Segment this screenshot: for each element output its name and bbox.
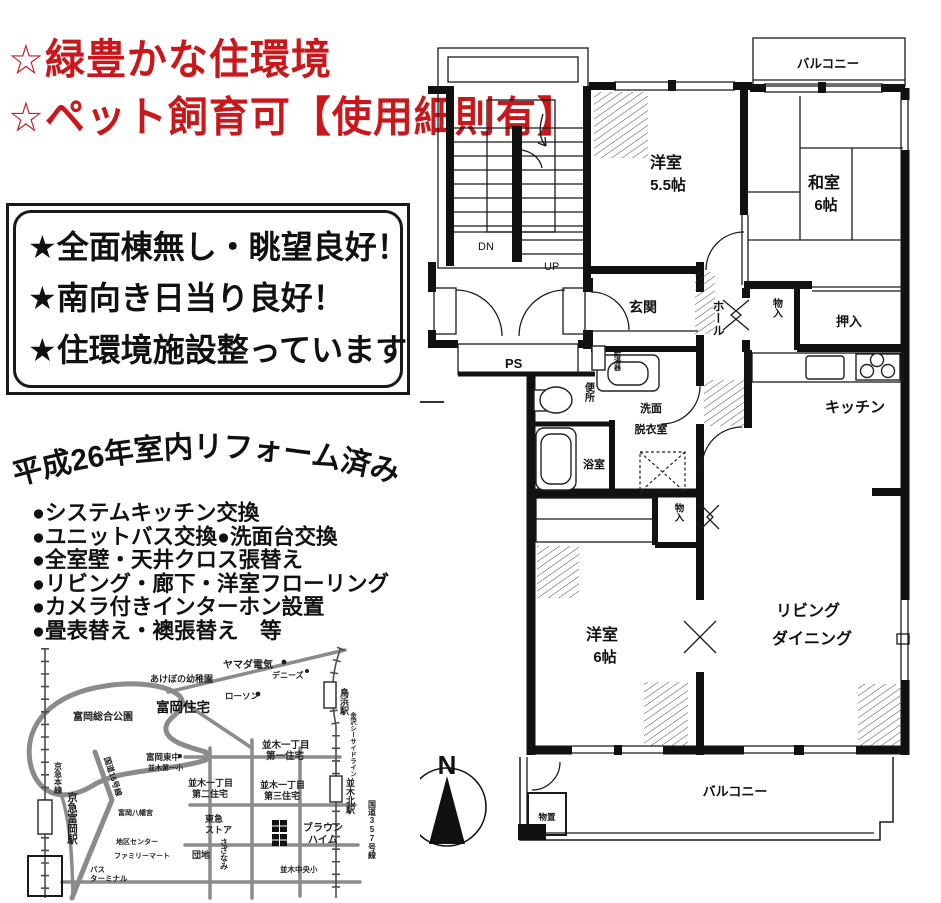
map-label-namiki1-l2: 第一住宅 (266, 750, 305, 762)
kitchen-label: キッチン (825, 399, 885, 416)
stairwell: DN UP (428, 48, 588, 278)
map-label-namiki-chuo: 並木中央小 (280, 864, 318, 874)
map-label-keikyu-station: 京急富岡駅 (66, 791, 78, 845)
access-map: あけぼの幼稚園 ヤマダ電気 デニーズ ローソン 富岡住宅 富岡総合公園 富岡東中… (0, 640, 415, 903)
balcony-top-label: バルコニー (797, 57, 859, 71)
bath-label: 浴室 (583, 457, 605, 471)
map-label-kindergarten: あけぼの幼稚園 (150, 673, 213, 684)
map-label-braun-l2: ハイム (308, 834, 338, 846)
living-label-l2: ダイニング (772, 629, 852, 648)
map-label-namiki2-l1: 並木一丁目 (188, 777, 233, 788)
flyer-page: ☆緑豊かな住環境 ☆ペット飼育可【使用細則有】 ★全面棟無し・眺望良好！ ★南向… (0, 0, 941, 903)
map-label-namiki2-l2: 第二住宅 (192, 788, 228, 799)
renovation-item: ●カメラ付きインターホン設置 (32, 596, 389, 620)
storage-lower-label: 物入 (673, 502, 686, 523)
map-label-r357: 国道357号線 (368, 799, 377, 860)
map-label-yamada: ヤマダ電気 (223, 658, 273, 671)
highlight-box-inner: ★全面棟無し・眺望良好！ ★南向き日当り良好！ ★住環境施設整っています (13, 210, 403, 388)
hall-label: ホール (711, 300, 725, 336)
map-label-namiki3-l2: 第三住宅 (264, 790, 300, 801)
map-label-tomioka-jutaku: 富岡住宅 (156, 699, 210, 715)
map-label-tomioka-park: 富岡総合公園 (73, 710, 133, 723)
stairs-dn-label: DN (478, 241, 494, 253)
tatami-lines (748, 96, 903, 240)
map-keikyu-tomioka-station-box (38, 800, 52, 834)
map-label-seaside: 金沢シーサイドライン (349, 711, 358, 778)
map-poi-dot (282, 660, 287, 665)
map-label-lawson: ローソン (225, 691, 260, 701)
washroom-label-l2: 脱衣室 (635, 422, 668, 436)
renovation-item: ●リビング・廊下・洋室フローリング (32, 573, 389, 597)
western6-size: 6帖 (593, 648, 616, 666)
oshiire-label: 押入 (836, 314, 862, 329)
renovation-title: 平成26年室内リフォーム済み (9, 431, 403, 492)
compass-north-label: N (438, 750, 457, 780)
water-heater-box (592, 346, 605, 370)
shed-label: 物置 (538, 812, 556, 822)
ps-label: PS (505, 356, 523, 371)
highlight-line: ★南向き日当り良好！ (28, 273, 388, 324)
washroom-label-l1: 洗面 (640, 401, 662, 415)
japanese-room-size: 6帖 (814, 196, 837, 214)
map-label-danchi: 団地 (192, 849, 210, 860)
toilet-label: 便所 (583, 381, 595, 403)
map-label-namiki-dai1sho: 並木第一小 (148, 763, 183, 772)
stairs-up-label: UP (544, 261, 559, 273)
renovation-item: ●システムキッチン交換 (32, 502, 389, 526)
western6-name: 洋室 (586, 625, 618, 644)
map-label-namiki1-l1: 並木一丁目 (262, 739, 310, 751)
renovation-list: ●システムキッチン交換 ●ユニットバス交換●洗面台交換 ●全室壁・天井クロス張替… (32, 502, 389, 643)
highlight-box: ★全面棟無し・眺望良好！ ★南向き日当り良好！ ★住環境施設整っています (6, 203, 410, 395)
map-label-torihama: 鳥浜駅 (339, 687, 350, 716)
highlight-line: ★全面棟無し・眺望良好！ (28, 222, 388, 273)
map-label-keikyu-line: 京急本線 (54, 761, 63, 795)
storage-upper-label: 物入 (771, 297, 783, 319)
map-label-tokyu-l2: ストア (205, 825, 232, 835)
map-torihama-station-box (324, 682, 336, 708)
map-label-tokyu-l1: 東急 (205, 813, 223, 824)
map-label-namiki3-l1: 並木一丁目 (260, 779, 305, 790)
compass-needle (429, 776, 465, 844)
map-label-chiku-center: 地区センター (116, 837, 158, 846)
living-label-l1: リビング (776, 601, 840, 620)
map-namikikita-station-box (330, 776, 342, 802)
balcony-top: バルコニー (753, 38, 905, 86)
map-label-sazanami: さざなみ (220, 838, 229, 871)
map-poi-dot (305, 669, 309, 673)
map-label-bus-l1: バス (90, 865, 105, 874)
floor-plan: DN UP PS (420, 10, 941, 903)
kitchen-sink (806, 356, 844, 379)
japanese-room-name: 和室 (808, 173, 840, 192)
entrance-porch: PS (428, 262, 595, 374)
map-label-familymart: ファミリーマート (114, 852, 170, 860)
balcony-bottom-label: バルコニー (703, 784, 768, 799)
western55-name: 洋室 (650, 153, 682, 172)
map-label-braun-l1: ブラウン (303, 821, 343, 834)
balcony-bottom: 物置 バルコニー (518, 757, 893, 840)
map-route357-road (358, 752, 366, 898)
map-property-marker (272, 820, 287, 846)
map-label-namiki-kita: 並木北駅 (345, 777, 356, 815)
western55-size: 5.5帖 (650, 176, 686, 194)
renovation-item: ●ユニットバス交換●洗面台交換 (32, 526, 389, 550)
renovation-title-arc: 平成26年室内リフォーム済み (4, 418, 416, 498)
entrance-label: 玄関 (629, 299, 657, 315)
renovation-item: ●全室壁・天井クロス張替え (32, 549, 389, 573)
highlight-line: ★住環境施設整っています (28, 325, 388, 376)
map-label-hachiman: 富岡八幡宮 (118, 808, 153, 817)
map-label-tomioka-higashi: 富岡東中 (146, 752, 180, 762)
toilet-bowl (540, 387, 572, 413)
map-label-bus-l2: ターミナル (90, 873, 128, 883)
map-label-dennys: デニーズ (272, 670, 304, 680)
compass: N (420, 750, 486, 846)
svg-text:平成26年室内リフォーム済み: 平成26年室内リフォーム済み (9, 431, 403, 492)
map-road (168, 650, 345, 692)
